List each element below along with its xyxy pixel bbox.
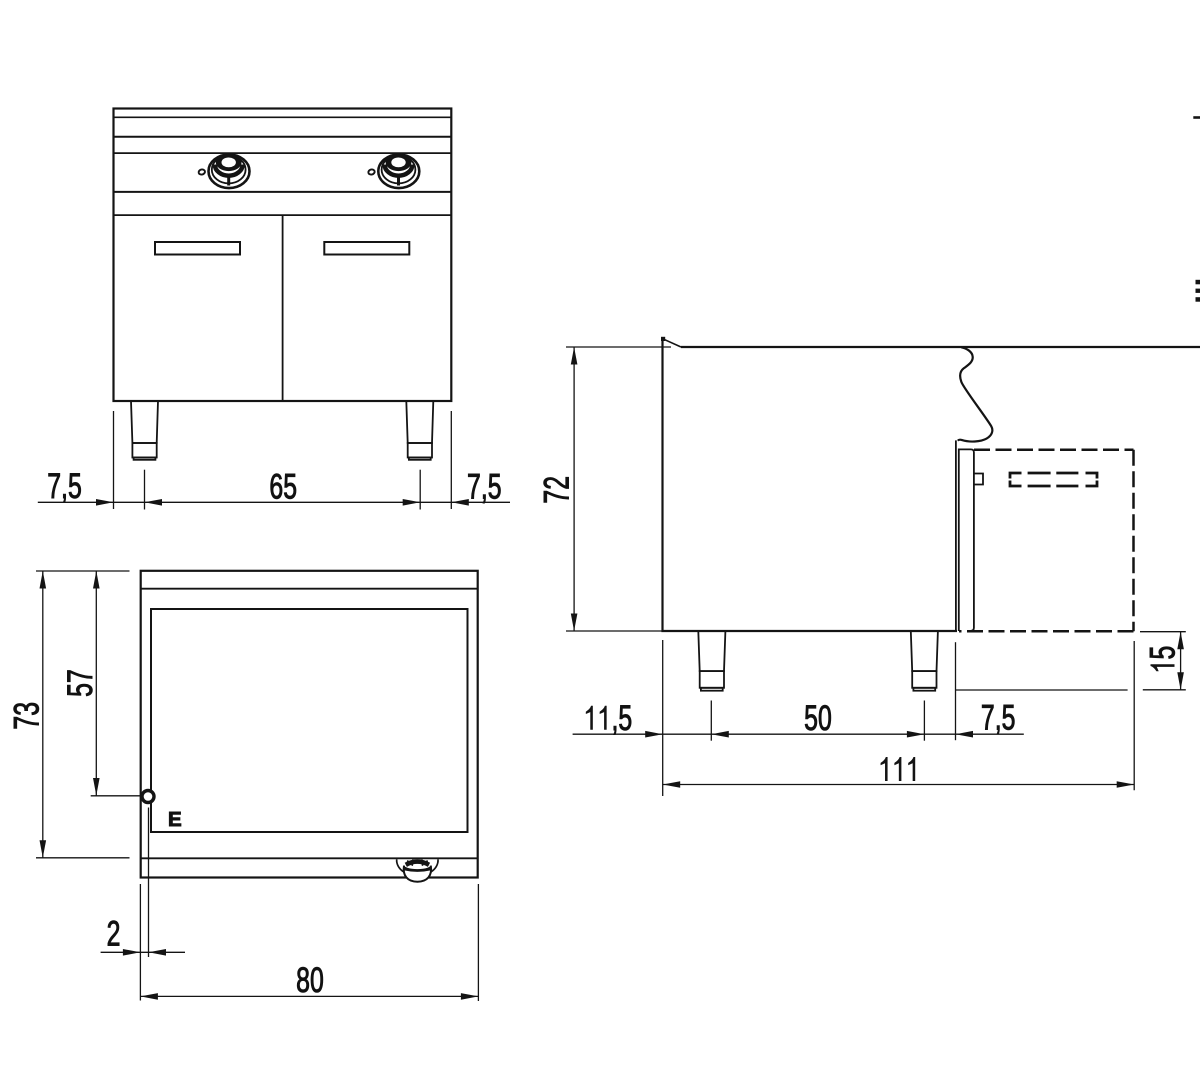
svg-text:7,5: 7,5 <box>981 699 1016 737</box>
svg-text:57: 57 <box>62 669 100 697</box>
svg-text:73: 73 <box>8 702 46 730</box>
svg-text:50: 50 <box>804 700 832 738</box>
svg-text:5: 5 <box>1145 646 1183 660</box>
svg-text:,5: ,5 <box>611 700 632 738</box>
svg-text:2: 2 <box>107 915 121 953</box>
svg-text:7,5: 7,5 <box>467 469 502 507</box>
svg-text:7,5: 7,5 <box>47 468 82 506</box>
svg-text:80: 80 <box>296 962 324 1000</box>
svg-text:72: 72 <box>539 476 577 504</box>
svg-text:E: E <box>168 808 182 831</box>
svg-text:65: 65 <box>269 469 297 507</box>
